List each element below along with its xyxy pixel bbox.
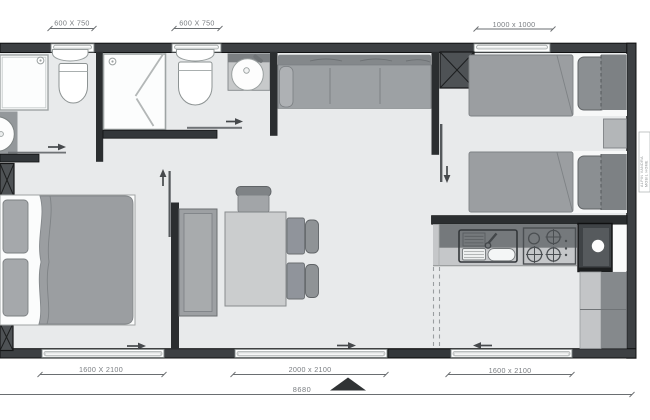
svg-text:1600 X 2100: 1600 X 2100: [79, 365, 123, 374]
svg-text:ALPIN VANDRA: ALPIN VANDRA: [640, 156, 644, 187]
svg-text:MOBIL HOME: MOBIL HOME: [645, 160, 649, 187]
svg-text:600 X 750: 600 X 750: [179, 19, 214, 28]
svg-text:2000 x 2100: 2000 x 2100: [289, 365, 332, 374]
svg-text:1600 x 2100: 1600 x 2100: [489, 366, 532, 375]
svg-text:600 X 750: 600 X 750: [54, 19, 89, 28]
svg-text:1000 x 1000: 1000 x 1000: [493, 20, 536, 29]
svg-text:8680: 8680: [293, 385, 311, 394]
